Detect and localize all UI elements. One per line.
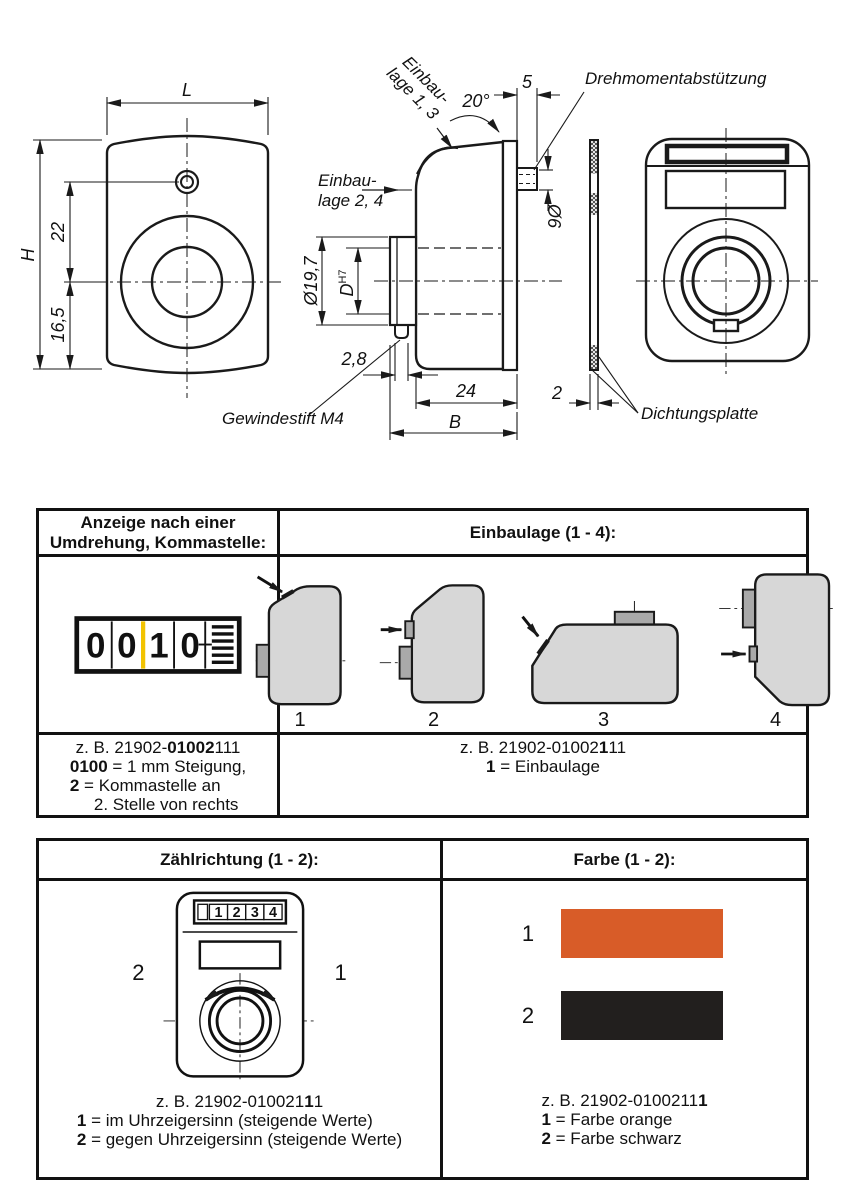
- einbaulage-1: 1: [253, 575, 348, 731]
- table2-example-left: z. B. 21902-01002111 1 = im Uhrzeigersin…: [77, 1089, 402, 1149]
- dim-2-8: 2,8: [340, 349, 366, 369]
- dim-L: L: [182, 80, 192, 100]
- code-explain: 1 = im Uhrzeigersinn (steigende Werte): [77, 1111, 402, 1130]
- order-code: z. B. 21902-01002111: [460, 738, 626, 757]
- technical-drawing: L H 22 16,5: [0, 0, 848, 490]
- dim-24: 24: [455, 381, 476, 401]
- direction-2-label: 2: [132, 960, 144, 986]
- counter-separator: [141, 621, 145, 668]
- color-swatch-orange: [561, 909, 723, 958]
- dim-22: 22: [48, 222, 68, 243]
- counter-digit-2: 0: [117, 626, 136, 665]
- device-digit-2: 2: [232, 905, 240, 921]
- einbaulage-3: 3: [520, 601, 688, 731]
- counter-display: 0 0 1 0: [73, 614, 243, 676]
- table1-header-left-line2: Umdrehung, Kommastelle:: [50, 533, 266, 553]
- counter-cell: 0 0 1 0: [39, 557, 280, 735]
- code-explain: 1 = Farbe orange: [541, 1110, 707, 1129]
- table2-example-right: z. B. 21902-01002111 1 = Farbe orange 2 …: [443, 1088, 806, 1148]
- table2-header-left: Zählrichtung (1 - 2):: [39, 841, 443, 881]
- direction-1-label: 1: [335, 960, 347, 986]
- counter-digit-1: 0: [86, 626, 105, 665]
- svg-text:Einbau-: Einbau-: [318, 171, 377, 190]
- table1-header-right: Einbaulage (1 - 4):: [280, 511, 806, 557]
- counter-digit-4: 0: [180, 626, 199, 665]
- table-anzeige-einbaulage: Anzeige nach einer Umdrehung, Kommastell…: [36, 508, 809, 818]
- code-explain: 0100 = 1 mm Steigung,: [70, 757, 246, 776]
- farbe-cell: 1 2 z. B. 21902-01002111 1 = Farbe orang…: [443, 881, 806, 1177]
- dim-H: H: [18, 248, 38, 262]
- table1-example-left: z. B. 21902-01002111 0100 = 1 mm Steigun…: [39, 735, 280, 815]
- code-explain: 2 = Farbe schwarz: [541, 1129, 707, 1148]
- order-code: z. B. 21902-01002111: [70, 738, 246, 757]
- einbaulage-2: 2: [378, 575, 490, 731]
- device-digit-4: 4: [269, 905, 277, 921]
- dim-5: 5: [522, 72, 533, 92]
- color-1-label: 1: [521, 921, 535, 947]
- zaehlrichtung-cell: 2 1 2 3: [39, 881, 443, 1177]
- indicator-device: 1 2 3 4: [159, 889, 321, 1085]
- front-view-right: [636, 128, 818, 374]
- table1-header-left-line1: Anzeige nach einer: [81, 513, 236, 533]
- device-digit-1: 1: [214, 905, 222, 921]
- label-drehmomentabstuetzung: Drehmomentabstützung: [585, 69, 767, 88]
- table1-header-left: Anzeige nach einer Umdrehung, Kommastell…: [39, 511, 280, 557]
- label-gewindestift-m4: Gewindestift M4: [222, 409, 344, 428]
- svg-text:lage 2, 4: lage 2, 4: [318, 191, 383, 210]
- dim-20deg: 20°: [461, 91, 489, 111]
- order-code: z. B. 21902-01002111: [77, 1092, 402, 1111]
- label-dichtungsplatte: Dichtungsplatte: [641, 404, 758, 423]
- code-explain: 2 = gegen Uhrzeigersinn (steigende Werte…: [77, 1130, 402, 1149]
- einbaulage-2-label: 2: [428, 709, 439, 731]
- dim-dia19-7: Ø19,7: [301, 256, 321, 307]
- dim-B: B: [449, 412, 461, 432]
- dim-16-5: 16,5: [48, 307, 68, 343]
- seal-plate: [569, 140, 638, 413]
- einbaulage-3-label: 3: [598, 709, 609, 731]
- front-view: [33, 97, 283, 398]
- order-code: z. B. 21902-01002111: [541, 1091, 707, 1110]
- counter-digit-3: 1: [149, 626, 168, 665]
- color-2-label: 2: [521, 1003, 535, 1029]
- einbaulage-4: 4: [718, 565, 834, 731]
- dim-D-H7: DH7: [337, 269, 357, 296]
- catalog-page: L H 22 16,5: [0, 0, 848, 1200]
- code-explain: 1 = Einbaulage: [460, 757, 626, 776]
- code-explain: 2 = Kommastelle an: [70, 776, 246, 795]
- einbaulage-cell: 1 2: [280, 557, 806, 735]
- table2-header-right: Farbe (1 - 2):: [443, 841, 806, 881]
- device-digit-3: 3: [250, 905, 258, 921]
- svg-text:DH7: DH7: [337, 269, 357, 296]
- einbaulage-4-label: 4: [770, 709, 781, 731]
- code-explain: 2. Stelle von rechts: [70, 795, 246, 814]
- table1-example-right: z. B. 21902-01002111 1 = Einbaulage: [280, 735, 806, 815]
- einbaulage-1-label: 1: [294, 709, 305, 731]
- side-view: [309, 88, 584, 440]
- table-zaehlrichtung-farbe: Zählrichtung (1 - 2): Farbe (1 - 2): 2: [36, 838, 809, 1180]
- label-einbaulage-2-4: Einbau- lage 2, 4: [318, 171, 383, 210]
- label-einbaulage-1-3: Einbau- lage 1, 3: [383, 50, 456, 123]
- color-swatch-black: [561, 991, 723, 1040]
- dim-dia6: Ø6: [544, 203, 564, 229]
- dim-2: 2: [551, 383, 562, 403]
